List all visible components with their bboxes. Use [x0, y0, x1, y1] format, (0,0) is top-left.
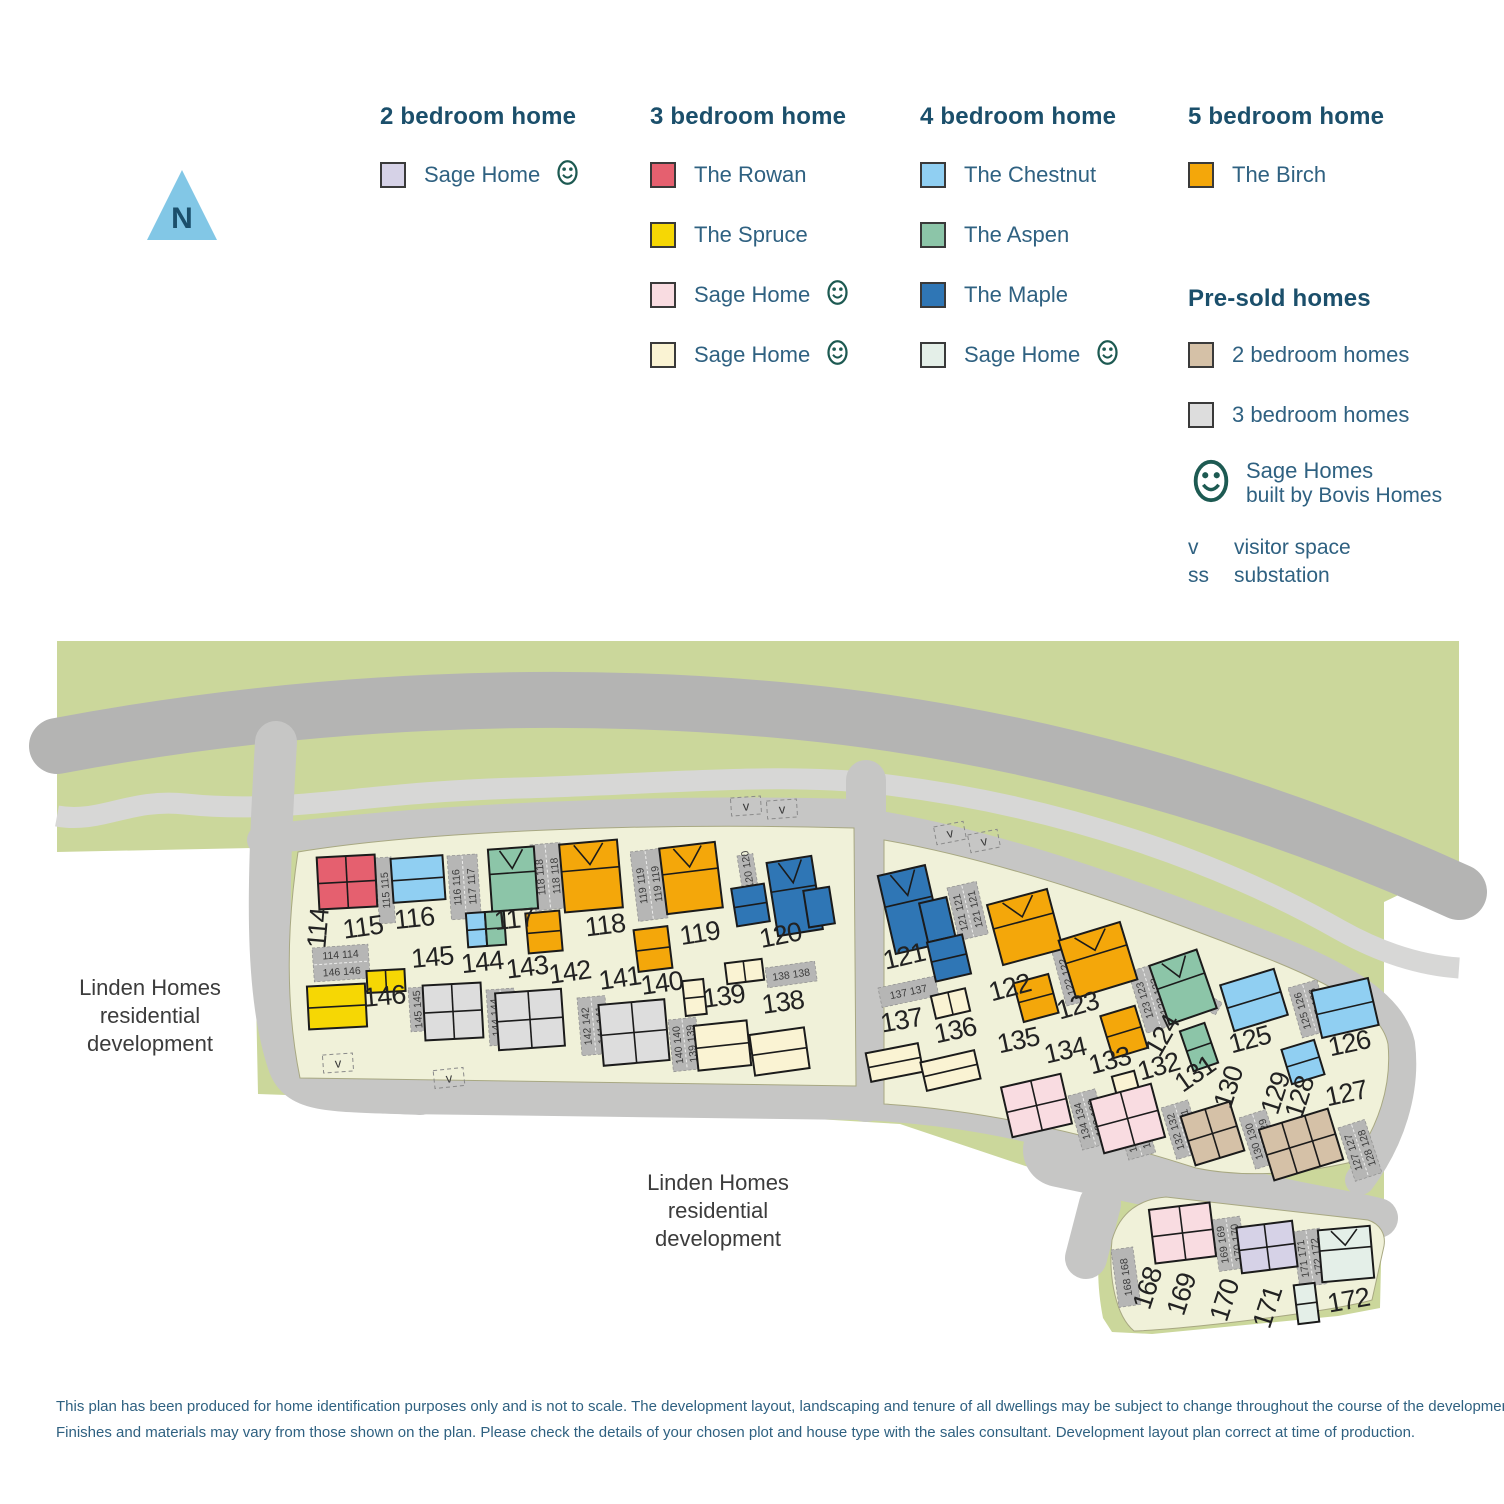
legend-item: Sage Home: [650, 280, 851, 310]
legend-item: The Chestnut: [920, 160, 1096, 190]
legend-column-title: 2 bedroom home: [380, 103, 640, 131]
legend-column-title: 4 bedroom home: [920, 103, 1180, 131]
legend-item-label: 2 bedroom homes: [1232, 342, 1409, 368]
plot-number-138: 138: [760, 984, 806, 1020]
owl-icon: [554, 159, 581, 186]
plot-number-118: 118: [583, 908, 626, 943]
plot-number-142: 142: [547, 954, 593, 990]
presold-title: Pre-sold homes: [1188, 285, 1448, 313]
house-plot-119g: [634, 926, 673, 972]
legend-column-3: 5 bedroom home: [1188, 103, 1448, 131]
house-plot-170-171: [1236, 1221, 1297, 1273]
house-plot-172: [1318, 1226, 1374, 1282]
legend-item-label: 3 bedroom homes: [1232, 402, 1409, 428]
key-symbol: v: [1188, 536, 1234, 560]
legend-swatch-maple: [920, 282, 946, 308]
street-stub: [1086, 1204, 1100, 1258]
legend-item-label: Sage Home: [424, 162, 540, 188]
legend-swatch-presold2: [1188, 342, 1214, 368]
plot-number-117: 117: [493, 902, 536, 936]
house-plot-119: [659, 842, 723, 914]
plot-number-145: 145: [410, 940, 455, 974]
house-plot-114-115: [317, 855, 378, 910]
legend-item: The Birch: [1188, 160, 1326, 190]
house-plot-172b: [1294, 1283, 1320, 1324]
legend-swatch-birch: [1188, 162, 1214, 188]
legend-swatch-sage_lav: [380, 162, 406, 188]
parking-strip: 114 114146 146: [312, 944, 370, 982]
owl-icon: [1188, 458, 1234, 504]
legend-item-label: Sage Home: [694, 342, 810, 368]
legend-swatch-sage_pale: [920, 342, 946, 368]
legend-item-label: The Maple: [964, 282, 1068, 308]
sage-credit-line2: built by Bovis Homes: [1246, 484, 1442, 508]
owl-icon-wrap: [824, 339, 851, 371]
house-plot-118: [559, 840, 623, 913]
legend-swatch-rowan: [650, 162, 676, 188]
house-plot-120g: [731, 884, 770, 927]
legend-item: 3 bedroom homes: [1188, 400, 1409, 430]
plot-number-139: 139: [701, 978, 747, 1014]
legend-item: Sage Home: [920, 340, 1121, 370]
key-item-v: vvisitor space: [1188, 536, 1351, 560]
plot-number-144: 144: [460, 945, 506, 979]
key-label: visitor space: [1234, 536, 1351, 559]
legend-item-label: The Chestnut: [964, 162, 1096, 188]
legend-item-label: Sage Home: [694, 282, 810, 308]
legend-swatch-spruce: [650, 222, 676, 248]
legend-item: The Maple: [920, 280, 1068, 310]
legend-item: Sage Home: [380, 160, 581, 190]
site-plan-page: { "north_label": "N", "colors": { "green…: [0, 0, 1504, 1504]
north-arrow-label: N: [171, 202, 193, 235]
legend-column-title: 5 bedroom home: [1188, 103, 1448, 131]
parking-strip: 116 116117 117: [447, 854, 481, 920]
house-plot-141-140: [598, 999, 669, 1066]
legend-column-1: 3 bedroom home: [650, 103, 910, 131]
legend-column-2: 4 bedroom home: [920, 103, 1180, 131]
house-plot-138: [749, 1027, 809, 1075]
legend-item-label: The Spruce: [694, 222, 808, 248]
disclaimer-line-2: Finishes and materials may vary from tho…: [56, 1424, 1456, 1441]
owl-icon: [1094, 339, 1121, 366]
key-item-ss: sssubstation: [1188, 564, 1330, 588]
owl-icon-wrap: [1188, 458, 1234, 509]
house-plot-143-142: [495, 989, 565, 1050]
plot-number-114: 114: [301, 906, 334, 949]
plot-number-116: 116: [393, 901, 436, 935]
plot-number-119: 119: [677, 915, 721, 951]
house-plot-168-169: [1149, 1202, 1216, 1263]
legend-item-label: The Birch: [1232, 162, 1326, 188]
site-plan-map: 115 115116 116117 117118 118118 118119 1…: [0, 600, 1504, 1360]
legend-swatch-aspen: [920, 222, 946, 248]
legend-column-0: 2 bedroom home: [380, 103, 640, 131]
plot-number-143: 143: [504, 950, 549, 985]
house-plot-122g: [927, 934, 971, 981]
legend-column-title: 3 bedroom home: [650, 103, 910, 131]
legend-swatch-sage_pink: [650, 282, 676, 308]
plot-number-172: 172: [1325, 1282, 1372, 1319]
legend-item: The Rowan: [650, 160, 807, 190]
legend-item-label: The Rowan: [694, 162, 807, 188]
house-plot-139: [694, 1020, 751, 1070]
sage-credit: Sage Homesbuilt by Bovis Homes: [1188, 458, 1442, 509]
presold-section: Pre-sold homes: [1188, 285, 1448, 313]
plot-number-140: 140: [639, 965, 685, 1001]
parking-strip-numbers: 117 117: [465, 868, 480, 905]
disclaimer-line-1: This plan has been produced for home ide…: [56, 1398, 1456, 1415]
legend-item-label: The Aspen: [964, 222, 1069, 248]
house-plot-146: [307, 984, 367, 1030]
legend-swatch-sage_cream: [650, 342, 676, 368]
parking-strip-numbers: 116 116: [450, 869, 465, 906]
plot-number-115: 115: [341, 909, 385, 944]
owl-icon-wrap: [824, 279, 851, 311]
owl-icon: [824, 279, 851, 306]
owl-icon-wrap: [1094, 339, 1121, 371]
area-label: Linden Homesresidentialdevelopment: [79, 975, 221, 1056]
legend-item: The Aspen: [920, 220, 1069, 250]
owl-icon: [824, 339, 851, 366]
house-plot-116: [391, 855, 446, 903]
house-plot-145-144: [423, 983, 484, 1041]
legend-item: Sage Home: [650, 340, 851, 370]
legend-item: 2 bedroom homes: [1188, 340, 1409, 370]
key-label: substation: [1234, 564, 1330, 587]
plot-number-141: 141: [597, 960, 643, 996]
legend-swatch-chestnut: [920, 162, 946, 188]
legend-swatch-presold3: [1188, 402, 1214, 428]
sage-credit-line1: Sage Homes: [1246, 458, 1442, 484]
legend-item-label: Sage Home: [964, 342, 1080, 368]
north-arrow: N: [144, 166, 220, 244]
owl-icon-wrap: [554, 159, 581, 191]
legend-item: The Spruce: [650, 220, 808, 250]
area-label: Linden Homesresidentialdevelopment: [647, 1170, 789, 1251]
plot-number-146: 146: [362, 979, 407, 1013]
key-symbol: ss: [1188, 564, 1234, 588]
